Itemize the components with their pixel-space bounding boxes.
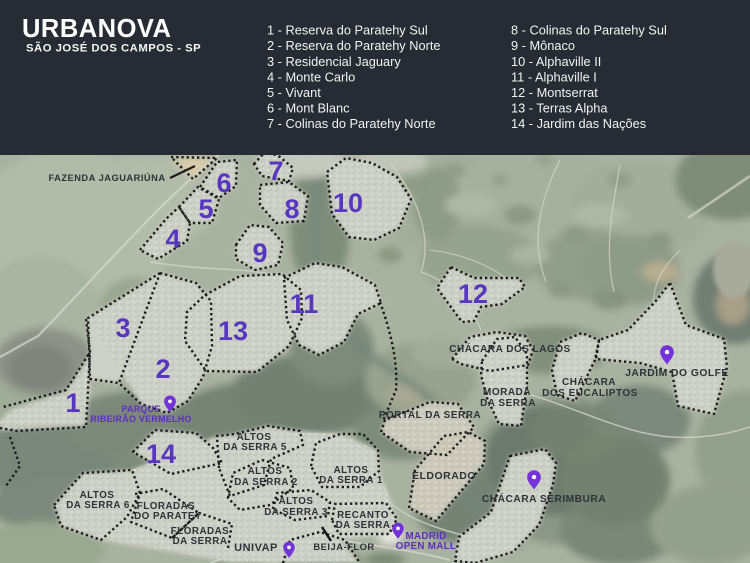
svg-text:SÃO JOSÉ DOS CAMPOS - SP: SÃO JOSÉ DOS CAMPOS - SP: [26, 42, 201, 55]
svg-text:PARQUE: PARQUE: [121, 404, 160, 414]
svg-text:7 - Colinas do Paratehy Norte: 7 - Colinas do Paratehy Norte: [267, 116, 436, 131]
svg-text:11: 11: [290, 289, 319, 319]
svg-text:14 - Jardim das Nações: 14 - Jardim das Nações: [511, 116, 646, 131]
svg-text:UNIVAP: UNIVAP: [234, 542, 278, 554]
svg-text:BEIJA-FLOR: BEIJA-FLOR: [313, 541, 374, 552]
svg-text:4 - Monte Carlo: 4 - Monte Carlo: [267, 69, 355, 84]
svg-text:MORADÁ: MORADÁ: [483, 385, 531, 398]
svg-text:DA SERRA 2: DA SERRA 2: [234, 477, 298, 488]
svg-text:1: 1: [65, 388, 80, 418]
svg-text:ALTOS: ALTOS: [279, 496, 314, 507]
svg-text:DO PARATEY: DO PARATEY: [134, 511, 202, 522]
svg-text:CHÁCARA SERIMBURA: CHÁCARA SERIMBURA: [482, 492, 606, 505]
svg-text:9 - Mônaco: 9 - Mônaco: [511, 38, 575, 53]
svg-text:URBANOVA: URBANOVA: [22, 15, 171, 43]
svg-text:ALTOS: ALTOS: [248, 466, 283, 477]
svg-text:JARDIM DO GOLFE: JARDIM DO GOLFE: [625, 368, 729, 379]
svg-text:5: 5: [198, 194, 213, 224]
svg-text:DA SERRA 1: DA SERRA 1: [319, 475, 383, 486]
svg-text:10: 10: [333, 188, 363, 218]
svg-text:FAZENDA JAGUARIÚNA: FAZENDA JAGUARIÚNA: [48, 172, 165, 183]
svg-text:12 - Montserrat: 12 - Montserrat: [511, 85, 598, 100]
svg-text:PORTAL DA SERRA: PORTAL DA SERRA: [379, 410, 481, 421]
svg-text:DA SERRA 3: DA SERRA 3: [264, 507, 328, 518]
svg-text:6 - Mont Blanc: 6 - Mont Blanc: [267, 101, 350, 116]
svg-text:CHÁCARA DOS LAGOS: CHÁCARA DOS LAGOS: [449, 342, 570, 355]
svg-text:12: 12: [458, 279, 488, 309]
svg-text:2 - Reserva do Paratehy Norte: 2 - Reserva do Paratehy Norte: [267, 38, 441, 53]
svg-text:DA SERRA: DA SERRA: [336, 520, 391, 531]
svg-text:8: 8: [284, 194, 299, 224]
svg-text:14: 14: [146, 439, 176, 469]
svg-text:1 - Reserva do Paratehy Sul: 1 - Reserva do Paratehy Sul: [267, 23, 428, 38]
svg-text:9: 9: [252, 238, 267, 268]
svg-text:5 - Vivant: 5 - Vivant: [267, 85, 321, 100]
svg-text:DA SERRA: DA SERRA: [480, 398, 536, 409]
svg-text:13 - Terras Alpha: 13 - Terras Alpha: [511, 101, 608, 116]
svg-text:CHÁCARA: CHÁCARA: [562, 375, 616, 388]
svg-text:DA SERRA 6: DA SERRA 6: [66, 500, 130, 511]
svg-text:2: 2: [155, 354, 170, 384]
svg-text:OPEN MALL: OPEN MALL: [396, 541, 456, 552]
svg-text:DA SERRA 5: DA SERRA 5: [223, 442, 287, 453]
svg-text:10 - Alphaville II: 10 - Alphaville II: [511, 54, 601, 69]
svg-text:RIBEIRÃO VERMELHO: RIBEIRÃO VERMELHO: [90, 414, 191, 424]
svg-text:13: 13: [218, 316, 248, 346]
svg-text:7: 7: [268, 156, 283, 186]
svg-text:DOS EUCALIPTOS: DOS EUCALIPTOS: [542, 388, 638, 399]
svg-text:11 - Alphaville I: 11 - Alphaville I: [511, 69, 597, 84]
svg-text:4: 4: [165, 224, 180, 254]
svg-text:3: 3: [115, 313, 130, 343]
svg-text:ELDORADO: ELDORADO: [412, 470, 476, 482]
svg-text:6: 6: [216, 168, 231, 198]
svg-text:DA SERRA: DA SERRA: [173, 536, 228, 547]
svg-text:3 - Residencial Jaguary: 3 - Residencial Jaguary: [267, 54, 401, 69]
svg-text:8 - Colinas do Paratehy Sul: 8 - Colinas do Paratehy Sul: [511, 23, 667, 38]
